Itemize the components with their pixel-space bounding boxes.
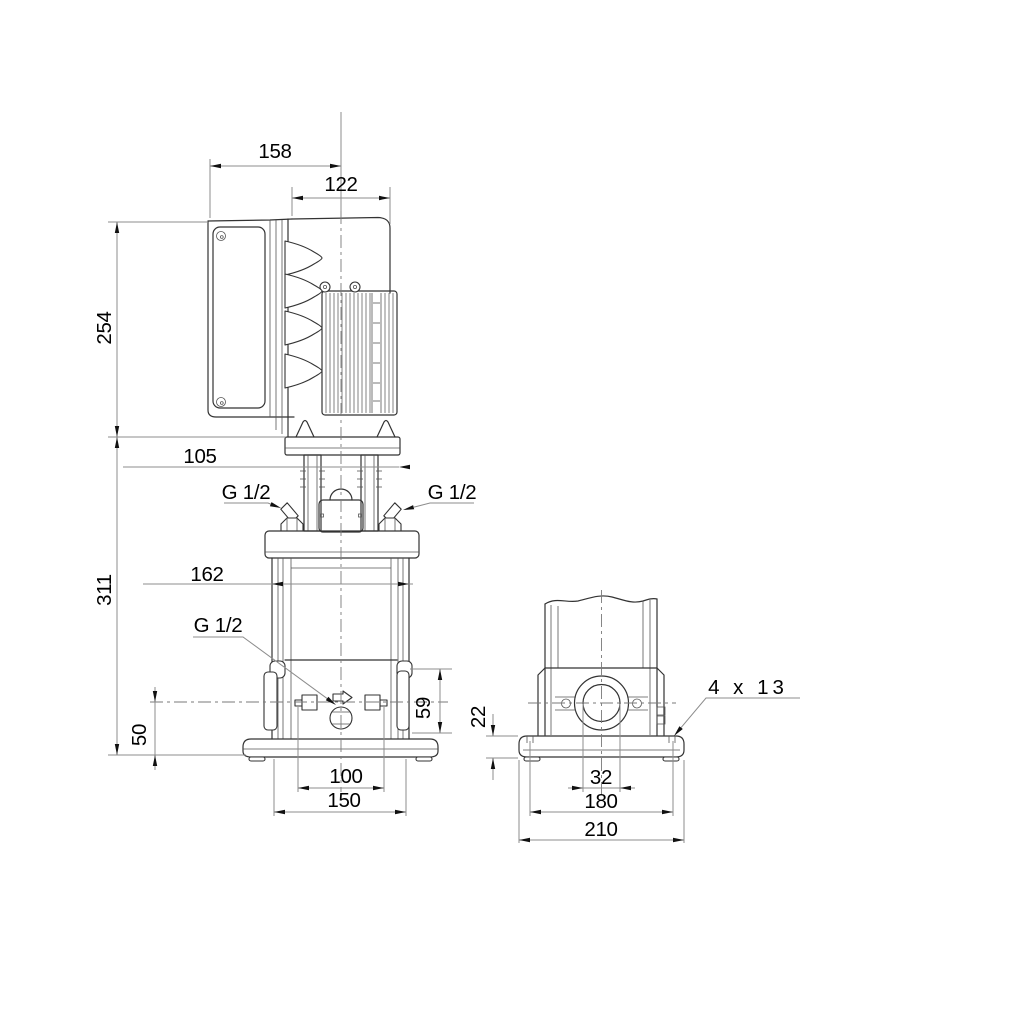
dim-162-label: 162 <box>190 563 223 586</box>
dim-105-label: 105 <box>183 445 216 468</box>
gauge-plug-boss-left <box>302 695 317 710</box>
port-boss-right <box>397 671 409 730</box>
port-boss-left <box>264 672 277 730</box>
plug-nut-left <box>281 518 303 531</box>
dim-150-label: 150 <box>327 789 360 812</box>
dim-158-label: 158 <box>258 140 291 163</box>
dim-210-label: 210 <box>584 818 617 841</box>
dim-254-label: 254 <box>93 311 116 344</box>
plug-stub-left <box>295 700 302 706</box>
dim-59-label: 59 <box>412 697 435 719</box>
mounting-holes-label: 4 x 13 <box>708 676 788 699</box>
gauge-port-left-label: G 1/2 <box>222 481 271 504</box>
dim-32-label: 32 <box>590 766 612 789</box>
gauge-port-right-label: G 1/2 <box>428 481 477 504</box>
plug-stub-right <box>380 700 387 706</box>
plug-nut-right <box>379 518 401 531</box>
drawing-background <box>0 0 1024 1024</box>
dim-100-label: 100 <box>329 765 362 788</box>
gauge-plug-boss-right <box>365 695 380 710</box>
pump-dimensional-drawing: 158 122 254 105 311 162 G 1/2 G 1/2 G 1/… <box>0 0 1024 1024</box>
dim-122-label: 122 <box>324 173 357 196</box>
dim-180-label: 180 <box>584 790 617 813</box>
dim-22-label: 22 <box>467 706 490 728</box>
dim-311-label: 311 <box>93 574 116 606</box>
dim-50-label: 50 <box>128 724 151 746</box>
motor-screw-right <box>350 282 360 292</box>
drain-port-label: G 1/2 <box>194 614 243 637</box>
